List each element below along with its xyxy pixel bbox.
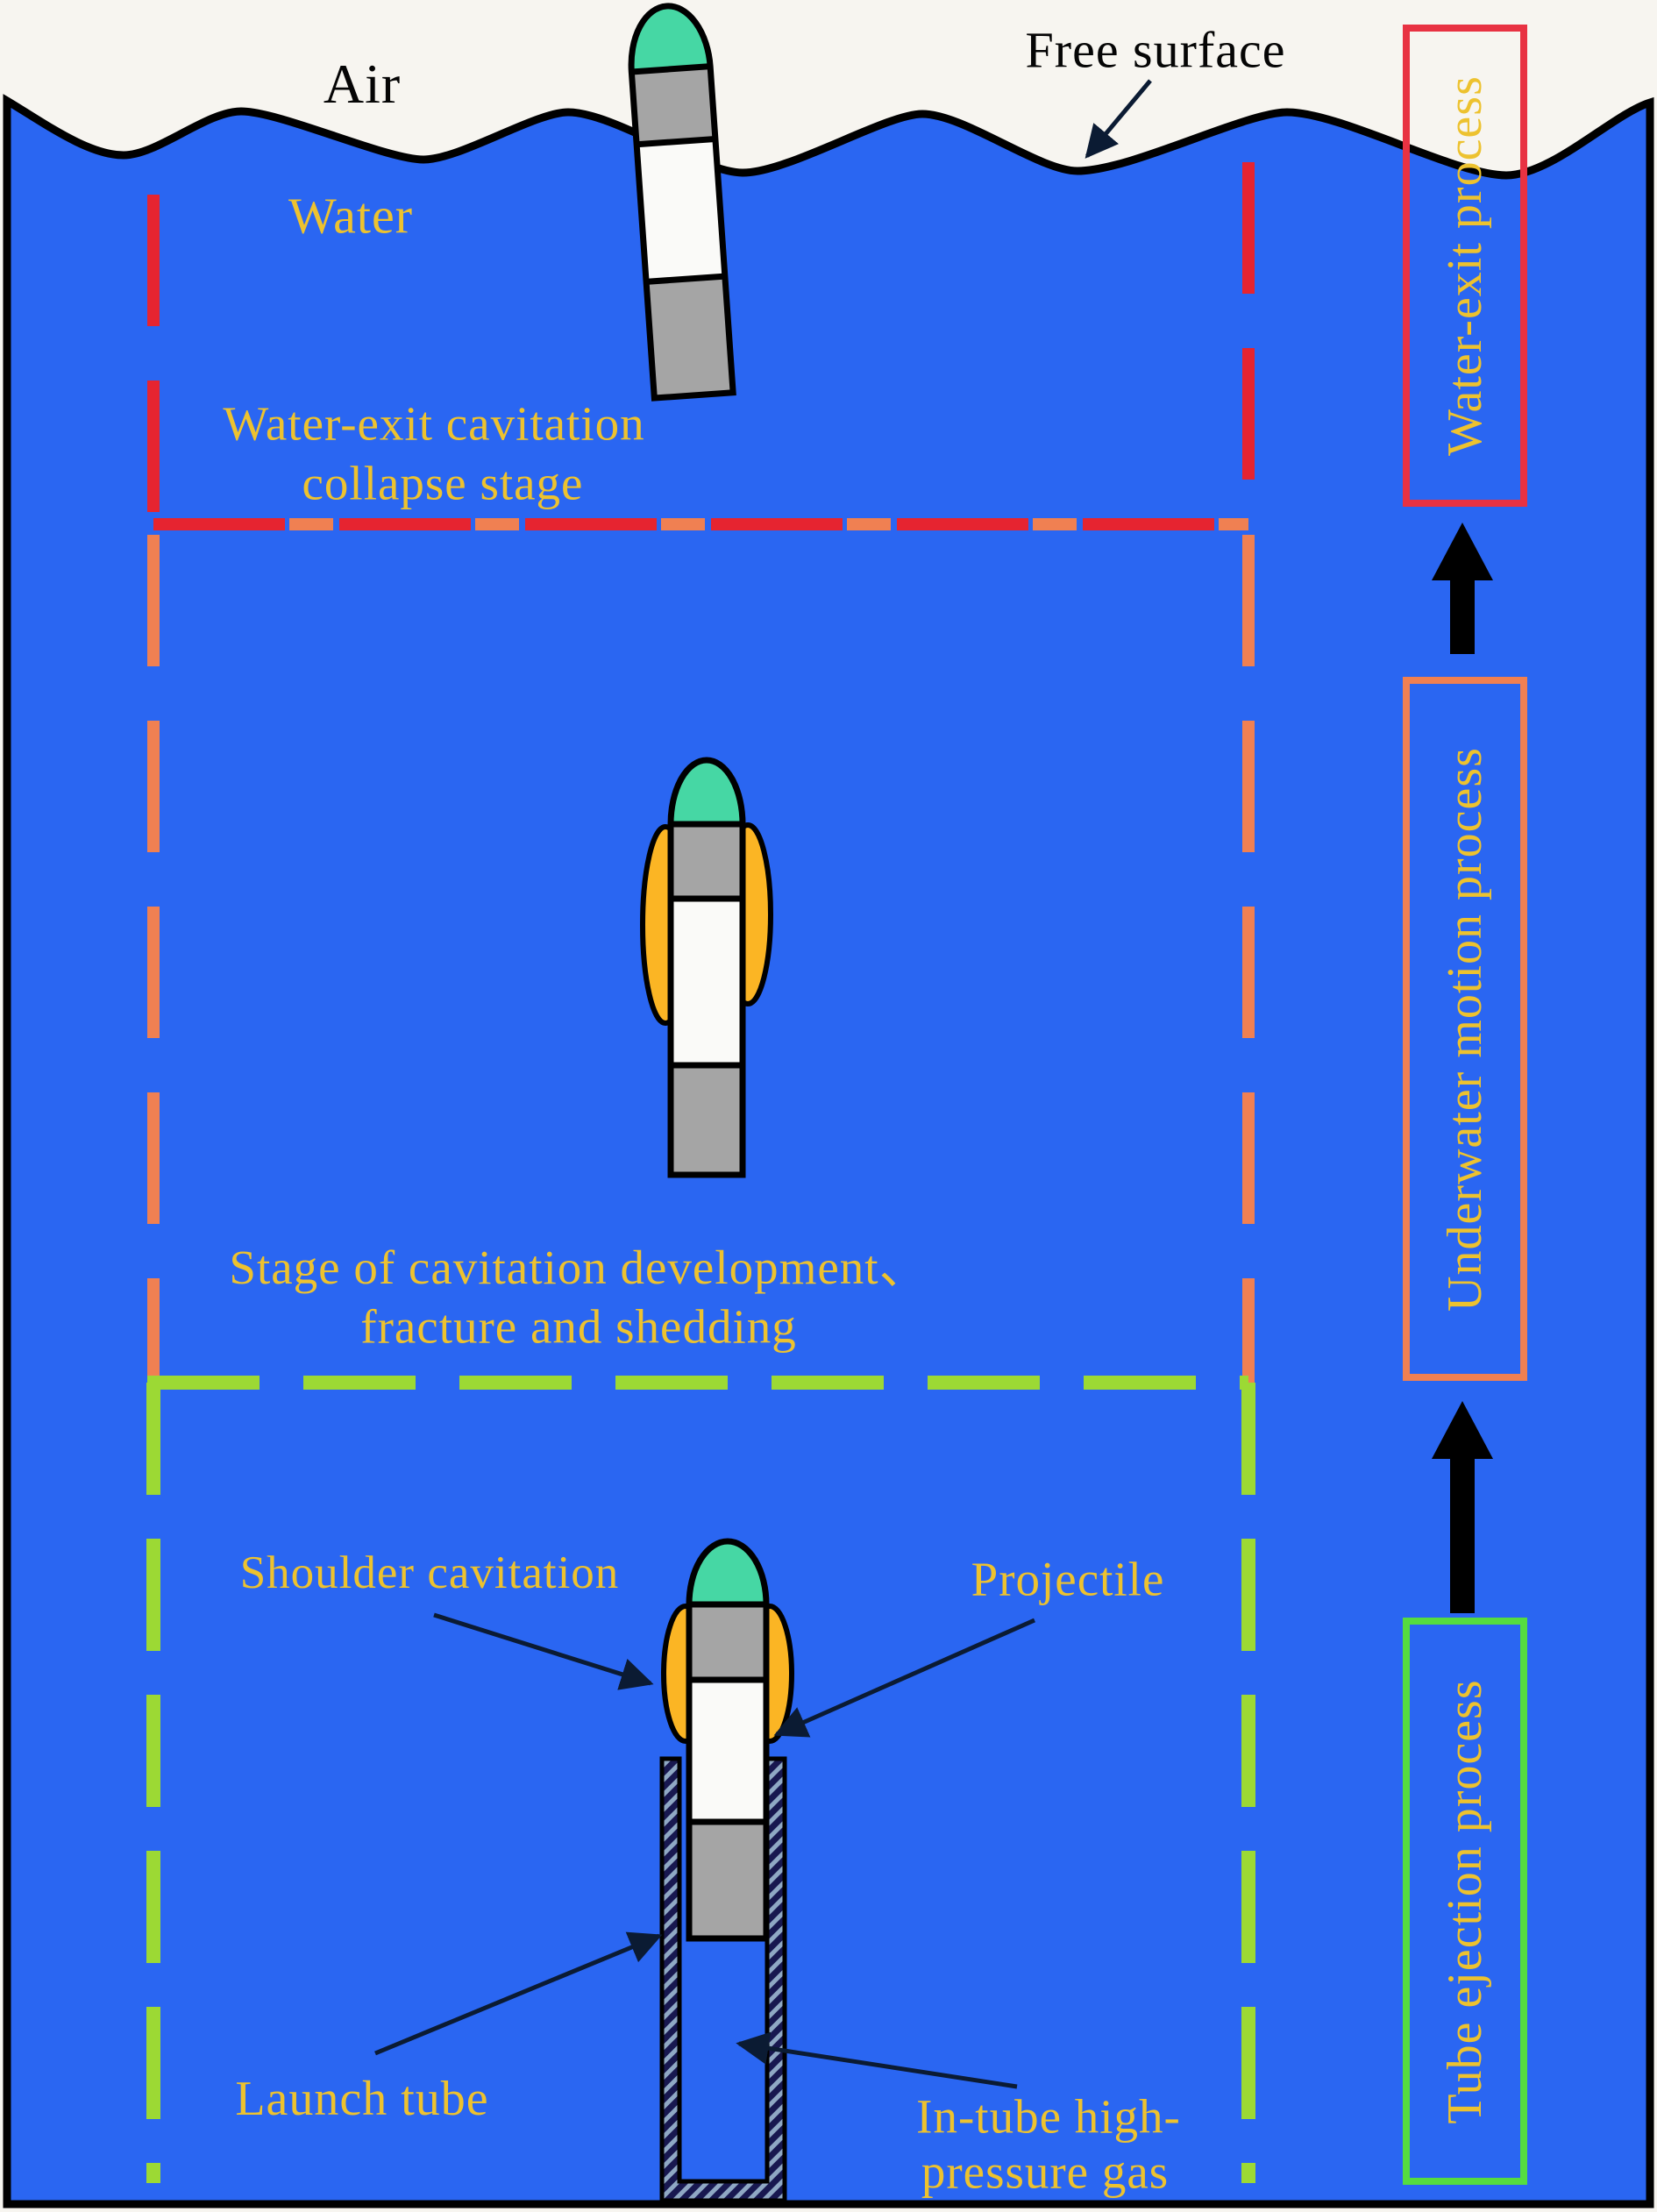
underwater-motion-process-label: Underwater motion process — [1437, 747, 1493, 1312]
intube-gas-label-line1: In-tube high- — [916, 2089, 1181, 2144]
underwater-motion-process-box: Underwater motion process — [1403, 677, 1527, 1381]
development-stage-label-line2: fracture and shedding — [360, 1299, 796, 1355]
projectile-label: Projectile — [971, 1552, 1165, 1607]
collapse-stage-label-line2: collapse stage — [302, 456, 584, 511]
development-stage-label-line1: Stage of cavitation development、 — [229, 1227, 928, 1298]
water-label: Water — [288, 187, 413, 245]
tube-ejection-process-label: Tube ejection process — [1437, 1679, 1493, 2123]
collapse-stage-label-line1: Water-exit cavitation — [223, 396, 644, 452]
free-surface-label: Free surface — [1026, 21, 1286, 80]
water-exit-process-box: Water-exit process — [1403, 25, 1527, 507]
tube-ejection-process-box: Tube ejection process — [1403, 1618, 1527, 2185]
water-exit-process-label: Water-exit process — [1437, 75, 1493, 456]
launch-tube-label: Launch tube — [235, 2071, 488, 2127]
free-surface-arrow — [1087, 81, 1150, 156]
air-label: Air — [324, 52, 401, 117]
shoulder-cavitation-label: Shoulder cavitation — [240, 1547, 620, 1599]
intube-gas-label-line2: pressure gas — [921, 2144, 1169, 2200]
water-exit-diagram: Air Free surface Water Water-exit cavita… — [0, 0, 1657, 2212]
